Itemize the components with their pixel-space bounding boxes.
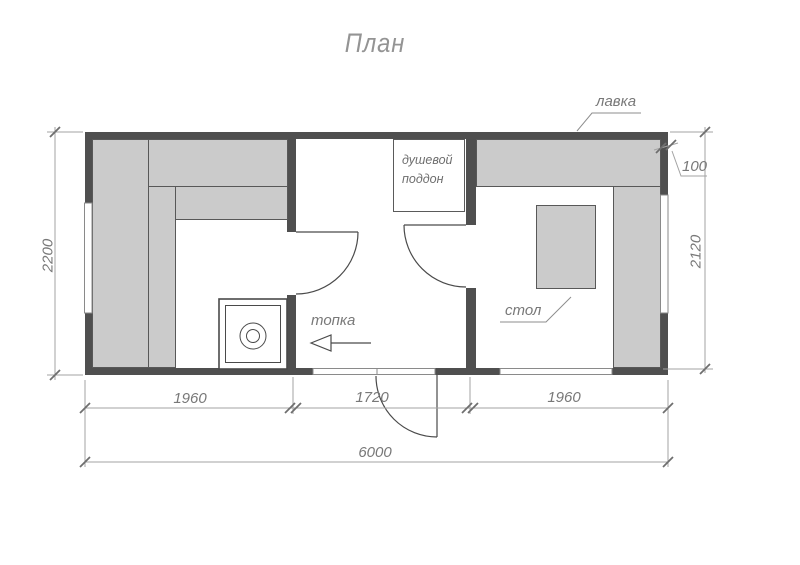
dim-left-height: 2200 xyxy=(40,226,57,286)
firebox-arrow-icon xyxy=(311,335,371,351)
page-title: План xyxy=(309,28,441,59)
bench-rest-room-right xyxy=(613,186,661,368)
door-steam-room xyxy=(296,232,358,294)
bench-rest-room-top xyxy=(476,139,661,187)
wall-left xyxy=(85,132,92,375)
table xyxy=(536,205,596,289)
dim-room-right-width: 1960 xyxy=(534,389,594,406)
dim-room-left-width: 1960 xyxy=(160,390,220,407)
door-entrance xyxy=(376,375,437,437)
shower-tray: душевой поддон xyxy=(393,139,465,212)
dim-total-width: 6000 xyxy=(345,444,405,461)
door-rest-room xyxy=(404,225,466,287)
partition-right xyxy=(466,139,476,368)
bench-top-lower-tier xyxy=(175,186,288,220)
table-label: стол xyxy=(505,302,541,319)
partition-left xyxy=(287,139,296,368)
wall-right xyxy=(661,132,668,375)
bench-left-step xyxy=(148,186,176,368)
dim-bench-offset: 100 xyxy=(682,158,707,175)
bench-label: лавка xyxy=(596,93,636,110)
bench-top-upper-tier xyxy=(148,139,288,187)
stove xyxy=(219,299,287,369)
wall-bottom xyxy=(85,368,668,375)
floor-plan-drawing: План душевой поддон xyxy=(0,0,800,565)
dim-room-middle-width: 1720 xyxy=(342,389,402,406)
firebox-label: топка xyxy=(311,312,355,329)
dim-right-height: 2120 xyxy=(688,222,705,282)
shower-tray-label-line2: поддон xyxy=(402,170,464,189)
bench-left-wall xyxy=(92,139,149,368)
wall-top xyxy=(85,132,668,139)
shower-tray-label-line1: душевой xyxy=(402,151,464,170)
